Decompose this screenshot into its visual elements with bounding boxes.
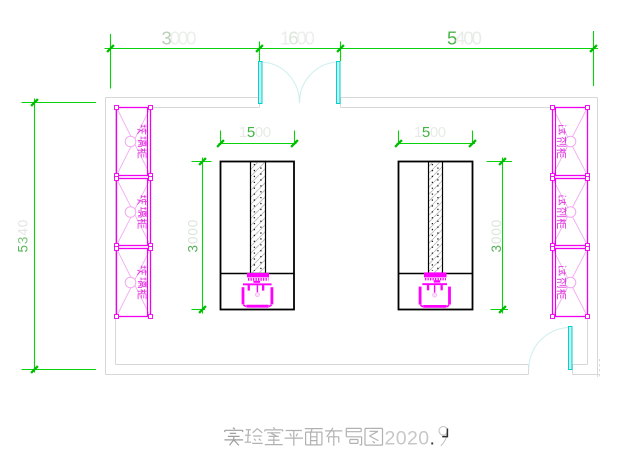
svg-text:2020.: 2020. [385, 428, 436, 450]
svg-text:1500: 1500 [239, 124, 271, 141]
svg-text:1500: 1500 [414, 124, 446, 141]
svg-text:3000: 3000 [162, 28, 197, 49]
svg-text:1600: 1600 [280, 28, 315, 49]
svg-text:3000: 3000 [489, 219, 504, 253]
svg-text:3000: 3000 [186, 219, 201, 253]
svg-text:5340: 5340 [16, 219, 31, 253]
svg-text:5400: 5400 [447, 28, 482, 49]
